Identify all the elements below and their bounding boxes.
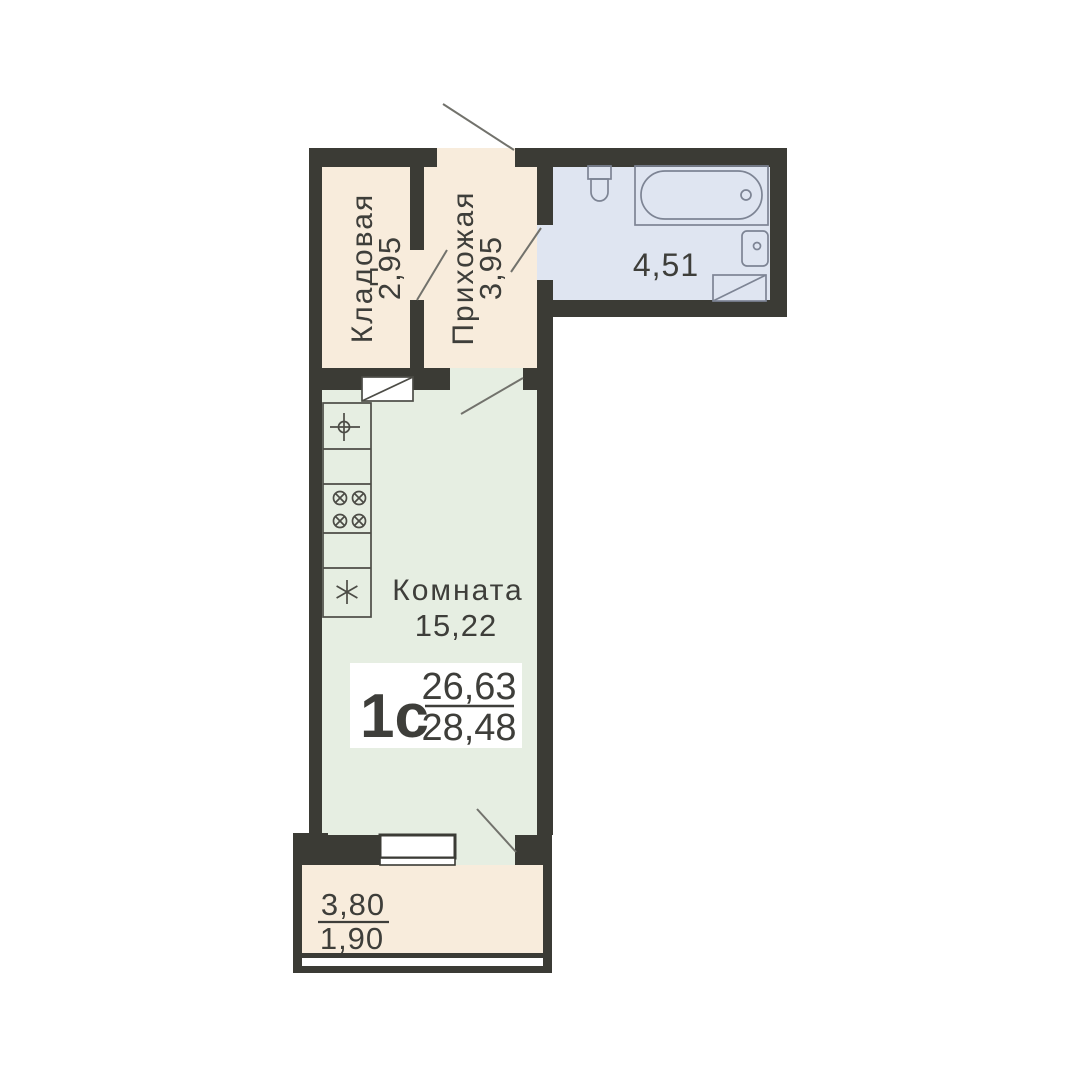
entrance-door-swing xyxy=(443,104,514,150)
unit-living-area: 26,63 xyxy=(421,666,516,708)
balcony-area-total: 3,80 xyxy=(321,887,385,922)
living-room-area: 15,22 xyxy=(415,608,498,643)
balcony-rail-outer xyxy=(293,966,552,973)
entrance-opening xyxy=(437,148,515,167)
window-sill xyxy=(380,858,455,865)
wall-left xyxy=(309,167,322,833)
floor-plan: Кладовая 2,95 Прихожая 3,95 4,51 Комната… xyxy=(0,0,1080,1080)
wall-room-top-stub xyxy=(523,368,537,390)
wall-bathroom-right xyxy=(770,167,787,317)
wall-hall-right-top xyxy=(537,167,553,225)
balcony-area-reduced: 1,90 xyxy=(320,921,384,956)
bathroom-door-opening xyxy=(537,225,553,280)
unit-total-area: 28,48 xyxy=(421,707,516,749)
wall-room-right xyxy=(537,317,553,835)
hallway-area: 3,95 xyxy=(473,236,508,300)
floor-plan-canvas: Кладовая 2,95 Прихожая 3,95 4,51 Комната… xyxy=(0,0,1080,1080)
wall-partition-bottom xyxy=(410,300,424,368)
unit-type-label: 1с xyxy=(360,682,429,751)
wall-hall-right-bottom xyxy=(537,280,553,300)
window xyxy=(380,835,455,858)
storage-area: 2,95 xyxy=(372,236,407,300)
wall-top-right xyxy=(515,148,787,167)
hall-vent-shaft-icon xyxy=(362,377,413,401)
bathroom-vent-shaft-icon xyxy=(713,275,766,301)
wall-top-left xyxy=(309,148,437,167)
wall-bathroom-bottom xyxy=(537,300,787,317)
wall-partition-top xyxy=(410,167,424,250)
unit-info-box: 1с 26,63 28,48 xyxy=(350,663,522,751)
living-room-door-opening xyxy=(450,368,523,390)
window-block xyxy=(380,835,455,865)
bathroom-area: 4,51 xyxy=(633,247,699,283)
wall-corner-bottom-right xyxy=(515,835,552,865)
living-room-label: Комната xyxy=(392,574,523,607)
wall-room-bottom-left xyxy=(322,835,380,865)
